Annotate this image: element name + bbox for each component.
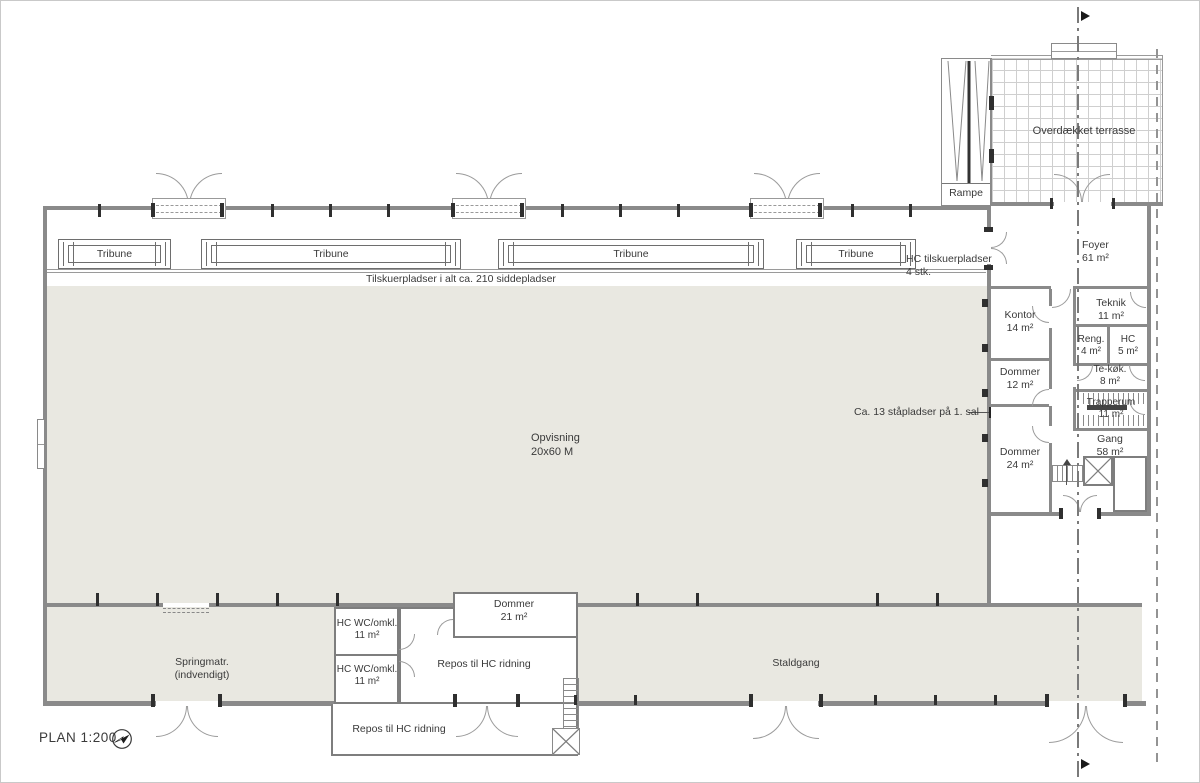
column-tick bbox=[819, 694, 823, 707]
column-tick bbox=[574, 695, 577, 705]
column-tick bbox=[520, 203, 524, 217]
office-top-wall bbox=[987, 286, 1051, 289]
door-leaf bbox=[1080, 495, 1097, 512]
tribune-3: Tribune bbox=[498, 239, 764, 269]
column-tick bbox=[156, 593, 159, 606]
door-frame bbox=[152, 198, 226, 219]
section-line bbox=[1077, 7, 1079, 778]
aisle-top-wall bbox=[47, 603, 163, 607]
column-tick bbox=[982, 344, 988, 352]
column-tick bbox=[874, 695, 877, 705]
label-rengoring: Reng. 4 m² bbox=[1078, 334, 1105, 357]
column-tick bbox=[1112, 198, 1115, 209]
column-tick bbox=[818, 203, 822, 217]
label-hcwc-upper: HC WC/omkl. 11 m² bbox=[337, 618, 398, 641]
column-tick bbox=[934, 695, 937, 705]
label-arena: Opvisning 20x60 M bbox=[531, 432, 580, 460]
label-repos-inner: Repos til HC ridning bbox=[437, 658, 530, 671]
door-leaf bbox=[1077, 365, 1093, 381]
teknik-bottom-wall bbox=[1073, 324, 1147, 327]
door-leaf bbox=[1130, 292, 1146, 308]
lift-x-icon bbox=[553, 729, 579, 754]
label-standing-note: Ca. 13 ståpladser på 1. sal bbox=[854, 406, 979, 419]
tribune-label: Tribune bbox=[59, 248, 170, 260]
tribune-label: Tribune bbox=[499, 248, 763, 260]
column-tick bbox=[453, 694, 457, 707]
label-dommer24: Dommer 24 m² bbox=[1000, 446, 1040, 472]
column-tick bbox=[151, 203, 155, 217]
wing-bottom-wall bbox=[987, 512, 1063, 516]
office-wall-v1 bbox=[1049, 406, 1052, 426]
top-wall bbox=[522, 206, 754, 210]
door-leaf bbox=[753, 706, 786, 739]
label-seating-total: Tilskuerpladser i alt ca. 210 siddeplads… bbox=[366, 273, 556, 286]
column-tick bbox=[982, 479, 988, 487]
section-arrow-icon bbox=[1081, 11, 1090, 21]
arena-floor bbox=[47, 286, 989, 603]
column-tick bbox=[634, 695, 637, 705]
label-trapperum: Trapperum 11 m² bbox=[1087, 397, 1136, 420]
label-ramp: Rampe bbox=[949, 187, 983, 200]
column-tick bbox=[1059, 508, 1063, 519]
column-tick bbox=[636, 593, 639, 606]
column-tick bbox=[876, 593, 879, 606]
column-tick bbox=[909, 204, 912, 217]
column-tick bbox=[218, 694, 222, 707]
stair-up-arrow-icon bbox=[1063, 459, 1071, 465]
label-dommer21: Dommer 21 m² bbox=[494, 598, 534, 624]
tribune-4: Tribune bbox=[796, 239, 916, 269]
top-wall bbox=[222, 206, 456, 210]
stair-arrow-line bbox=[1066, 463, 1067, 485]
column-tick bbox=[96, 593, 99, 606]
leader-tick bbox=[989, 407, 991, 418]
column-tick bbox=[1123, 694, 1127, 707]
column-tick bbox=[994, 695, 997, 705]
terrace-beam bbox=[1051, 43, 1117, 59]
column-tick bbox=[989, 149, 994, 163]
label-tekokken: Te-køk. 8 m² bbox=[1094, 364, 1127, 387]
column-tick bbox=[151, 694, 155, 707]
tribune-2: Tribune bbox=[201, 239, 461, 269]
column-tick bbox=[696, 593, 699, 606]
column-tick bbox=[1045, 694, 1049, 707]
wing-right-wall bbox=[1147, 202, 1151, 516]
stable-aisle-floor bbox=[47, 607, 1142, 701]
column-tick bbox=[749, 694, 753, 707]
lift-x-icon bbox=[1085, 458, 1111, 484]
office-wall-v2 bbox=[1073, 387, 1076, 428]
office-top-wall bbox=[1073, 286, 1147, 289]
bottom-wall bbox=[43, 701, 156, 706]
tribune-1: Tribune bbox=[58, 239, 171, 269]
door-leaf bbox=[786, 706, 819, 739]
floor-plan-canvas: Tribune Tribune Tribune Tribune bbox=[0, 0, 1200, 783]
reng-hc-wall bbox=[1107, 324, 1110, 363]
door-leaf bbox=[991, 232, 1007, 248]
column-tick bbox=[220, 203, 224, 217]
section-arrow-icon bbox=[1081, 759, 1090, 769]
tekok-bottom-wall bbox=[1073, 389, 1147, 392]
column-tick bbox=[1050, 198, 1053, 209]
column-tick bbox=[271, 204, 274, 217]
label-kontor: Kontor 14 m² bbox=[1005, 309, 1036, 335]
sliding-door bbox=[163, 612, 209, 613]
column-tick bbox=[98, 204, 101, 217]
column-tick bbox=[329, 204, 332, 217]
label-dommer12: Dommer 12 m² bbox=[1000, 366, 1040, 392]
column-tick bbox=[516, 694, 520, 707]
door-leaf bbox=[1086, 706, 1123, 743]
label-repos-outer: Repos til HC ridning bbox=[352, 723, 445, 736]
column-tick bbox=[451, 203, 455, 217]
column-tick bbox=[936, 593, 939, 606]
wing-bottom-wall bbox=[1097, 512, 1151, 516]
column-tick bbox=[1097, 508, 1101, 519]
column-tick bbox=[982, 299, 988, 307]
kontor-dommer-wall bbox=[991, 358, 1049, 361]
label-staldgang: Staldgang bbox=[772, 657, 819, 670]
column-tick bbox=[276, 593, 279, 606]
label-teknik: Teknik 11 m² bbox=[1096, 297, 1126, 323]
office-wall-v1 bbox=[1049, 328, 1052, 389]
left-wall-panel bbox=[37, 419, 45, 469]
column-tick bbox=[336, 593, 339, 606]
column-tick bbox=[982, 434, 988, 442]
door-leaf bbox=[1129, 365, 1145, 381]
door-frame bbox=[452, 198, 526, 219]
column-tick bbox=[984, 227, 993, 232]
tribune-label: Tribune bbox=[202, 248, 460, 260]
repos-lift bbox=[552, 728, 580, 755]
column-tick bbox=[387, 204, 390, 217]
column-tick bbox=[677, 204, 680, 217]
label-hc-toilet: HC 5 m² bbox=[1118, 334, 1138, 357]
column-tick bbox=[216, 593, 219, 606]
gang-side-room bbox=[1113, 456, 1147, 512]
axis-line bbox=[1156, 49, 1158, 763]
door-leaf bbox=[1032, 426, 1049, 443]
sliding-door bbox=[163, 608, 209, 609]
door-leaf bbox=[1052, 289, 1071, 308]
column-tick bbox=[982, 389, 988, 397]
terrace-right-edge bbox=[1162, 55, 1163, 202]
tribune-label: Tribune bbox=[797, 248, 915, 260]
column-tick bbox=[851, 204, 854, 217]
column-tick bbox=[749, 203, 753, 217]
door-leaf bbox=[156, 706, 187, 737]
label-hc-seating: HC tilskuerpladser 4 stk. bbox=[906, 253, 992, 279]
ramp-area bbox=[941, 58, 991, 206]
gang-lift bbox=[1083, 456, 1113, 486]
terrace-bottom-wall bbox=[987, 202, 1054, 206]
tribune-edge-line bbox=[47, 269, 986, 270]
column-tick bbox=[984, 265, 993, 270]
label-foyer: Foyer 61 m² bbox=[1082, 239, 1109, 265]
plan-title: PLAN 1:200 bbox=[39, 730, 117, 747]
label-springmatr: Springmatr. (indvendigt) bbox=[175, 656, 230, 682]
top-wall bbox=[820, 206, 989, 210]
north-arrow-icon bbox=[111, 728, 133, 750]
column-tick bbox=[989, 96, 994, 110]
column-tick bbox=[561, 204, 564, 217]
label-terrace: Overdækket terrasse bbox=[1033, 125, 1136, 139]
door-leaf bbox=[991, 248, 1007, 264]
door-frame bbox=[750, 198, 824, 219]
column-tick bbox=[619, 204, 622, 217]
door-leaf bbox=[187, 706, 218, 737]
office-wall-v2 bbox=[1073, 289, 1076, 365]
label-hcwc-lower: HC WC/omkl. 11 m² bbox=[337, 664, 398, 687]
ramp-hatch-icon bbox=[942, 59, 992, 185]
door-leaf bbox=[1049, 706, 1086, 743]
label-gang: Gang 58 m² bbox=[1097, 433, 1124, 459]
trappe-bottom-wall bbox=[1073, 428, 1147, 431]
